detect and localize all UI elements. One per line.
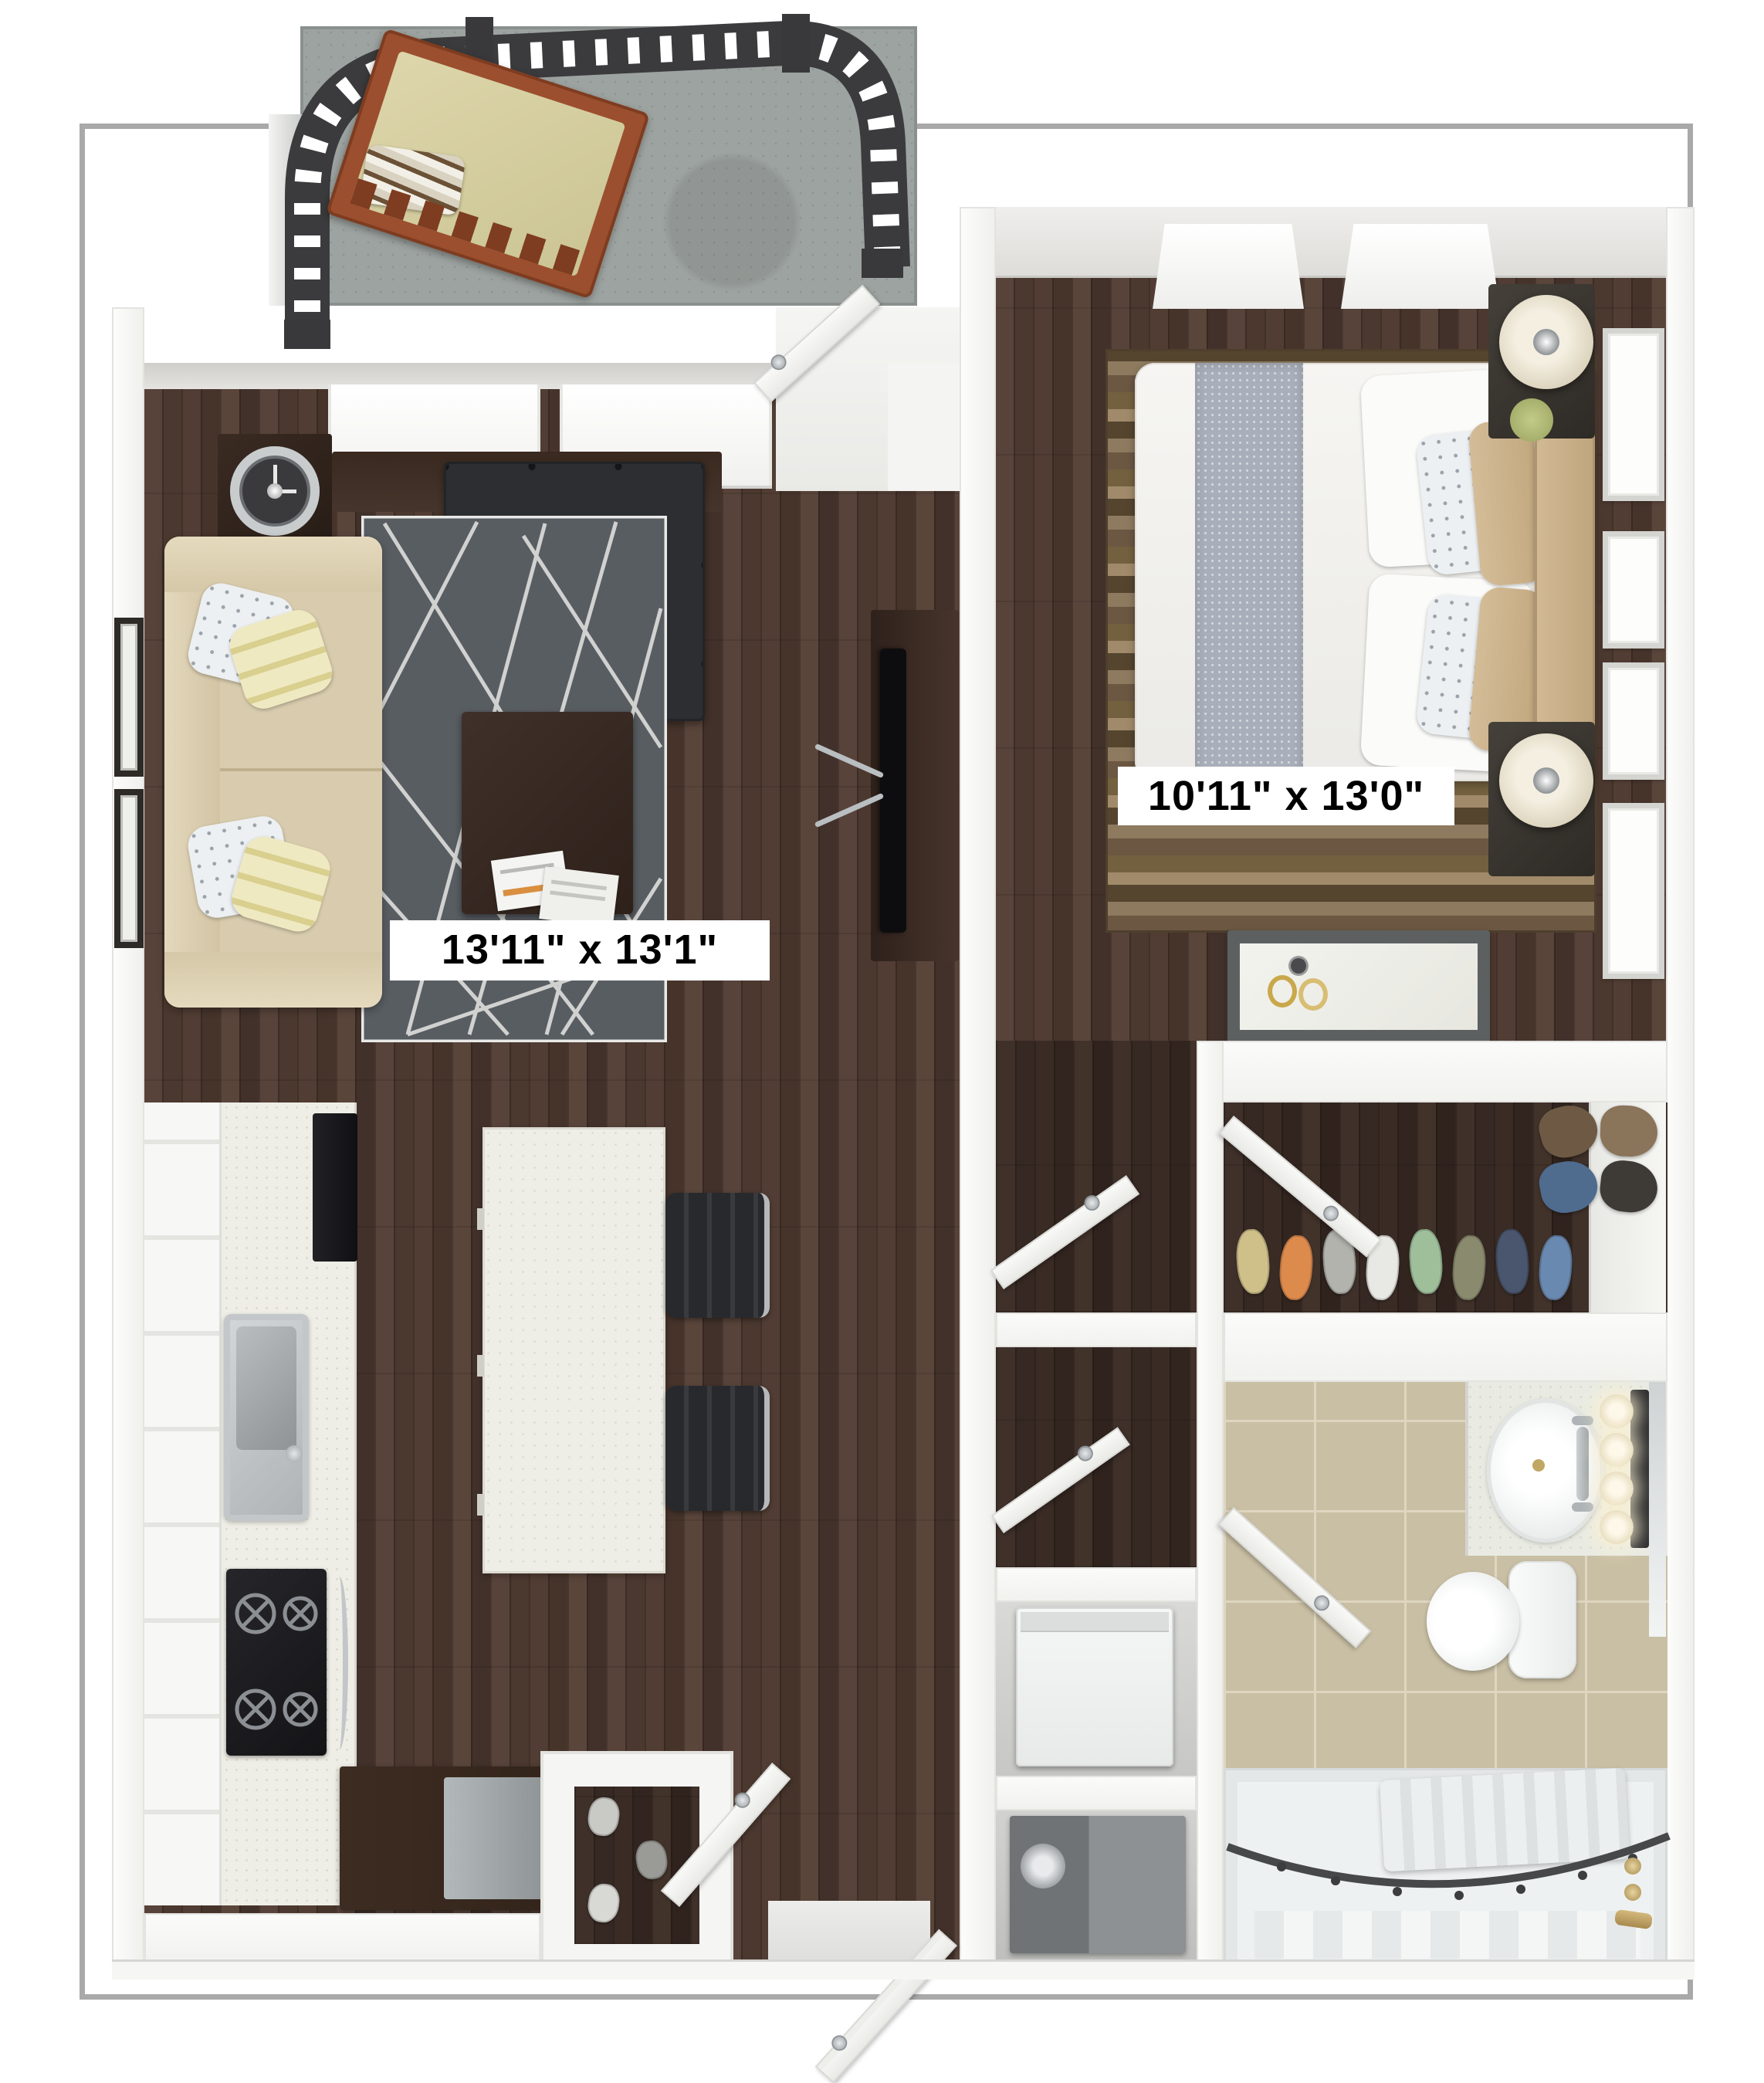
hall-wall (996, 1776, 1197, 1810)
living-bedroom-divider-wall (960, 207, 996, 1976)
wall-column-balcony-right (888, 363, 961, 491)
tub-handle-icon (1624, 1884, 1641, 1901)
shoe-pair (1537, 1235, 1574, 1302)
shoe-pair (1451, 1235, 1488, 1302)
hanging-garment (1535, 1157, 1601, 1218)
bedroom-dimensions-label: 10'11" x 13'0" (1118, 767, 1454, 825)
magazine-stripe (550, 890, 605, 901)
hanging-garments (1540, 1106, 1664, 1221)
tv-screen (880, 649, 906, 933)
shoe-pair (586, 1795, 622, 1837)
picture-frame (1603, 662, 1664, 780)
picture-frame (1603, 328, 1664, 501)
island-handle-icon (477, 1355, 484, 1377)
vanity-bulbs (1600, 1394, 1635, 1549)
hanging-garment (1600, 1105, 1658, 1158)
heater-cap-icon (1021, 1844, 1065, 1888)
vanity-bulb-icon (1600, 1394, 1634, 1428)
tub-faucet-brass-icon (1610, 1851, 1657, 1952)
lamp-finial-icon (1533, 329, 1559, 355)
vanity-bulb-icon (1600, 1510, 1634, 1544)
sink-basin (236, 1326, 296, 1450)
washer-control-panel (1021, 1612, 1169, 1632)
picture-frame (1603, 531, 1664, 649)
picture-frame (114, 789, 144, 948)
magazine (539, 866, 619, 927)
hall-wall (996, 1312, 1197, 1347)
bedroom-dresser (1227, 930, 1490, 1045)
wall-oven (313, 1113, 357, 1262)
faucet-handle-icon (1572, 1416, 1593, 1425)
island-handle-icon (477, 1208, 484, 1230)
washer-unit (1016, 1607, 1173, 1766)
sofa (164, 537, 382, 1008)
bedroom-curtain (1341, 224, 1500, 309)
clock-center-icon (267, 483, 283, 499)
shoe-pair (1278, 1235, 1315, 1302)
table-lamp-icon (1499, 733, 1593, 828)
stainless-panel (444, 1777, 543, 1899)
closet-bottom-wall (1224, 1312, 1668, 1382)
kitchen-faucet-icon (286, 1445, 303, 1462)
door-knob-icon (831, 2034, 848, 2052)
entry-floor-tile (768, 1901, 930, 1963)
bar-stool (665, 1386, 770, 1511)
faucet-handle-icon (1572, 1502, 1593, 1512)
hanging-garment (1598, 1158, 1660, 1214)
sofa-arm (164, 952, 382, 1008)
bar-stool (665, 1193, 770, 1318)
kitchen-island (482, 1127, 665, 1573)
magazine-stripe (551, 880, 607, 891)
table-lamp-icon (1499, 295, 1593, 389)
oven-handle-icon (330, 1577, 348, 1749)
tub-spout-icon (1614, 1909, 1653, 1929)
vanity-mirror (1649, 1382, 1666, 1637)
vanity-bulb-icon (1600, 1433, 1634, 1467)
shoe-pair (1407, 1228, 1444, 1296)
bottom-exterior-wall (112, 1959, 1695, 1980)
shoe-pair (1494, 1228, 1531, 1296)
sink-faucet-icon (1576, 1427, 1589, 1501)
living-room-dimensions-label: 13'11" x 13'1" (390, 920, 770, 981)
left-exterior-wall (112, 307, 144, 1961)
sink-drain-icon (1532, 1459, 1545, 1472)
moss-ball-decor (1510, 398, 1553, 442)
sofa-arm (164, 537, 382, 592)
tub-handle-icon (1624, 1858, 1641, 1875)
stove-burners-icon (226, 1569, 327, 1756)
water-heater-unit (1010, 1816, 1186, 1953)
hanging-garment (1535, 1099, 1603, 1163)
sofa-cushion-seam (220, 768, 382, 771)
bedroom-curtain (1153, 224, 1304, 309)
jewelry-ring-icon (1298, 978, 1328, 1011)
hall-wall (996, 1567, 1197, 1602)
picture-frame (1603, 803, 1664, 979)
island-handle-icon (477, 1494, 484, 1516)
jewelry-ring-icon (1268, 975, 1297, 1008)
shoe-pair (586, 1881, 622, 1924)
door-knob-icon (1322, 1204, 1340, 1222)
shoe-pair (634, 1838, 670, 1881)
kitchen-sink (224, 1314, 309, 1521)
closet-shoe-row (1237, 1229, 1584, 1303)
lamp-finial-icon (1533, 767, 1559, 794)
entry-closet-shoes (582, 1797, 690, 1936)
picture-frame (114, 618, 144, 777)
watch-icon (1291, 958, 1306, 974)
vanity-bulb-icon (1600, 1472, 1634, 1506)
right-exterior-wall (1666, 207, 1695, 1976)
wall-clock-icon (230, 446, 320, 536)
bed-runner (1195, 363, 1303, 781)
kitchen-bottom-wall (144, 1913, 540, 1963)
kitchen-cabinets (144, 1102, 222, 1905)
floor-plan: 13'11" x 13'1" 10'11" x 13'0" (0, 0, 1764, 2078)
toilet-bowl (1427, 1572, 1519, 1671)
door-knob-icon (1313, 1594, 1331, 1612)
bedroom-top-wall (994, 207, 1668, 278)
shoe-pair (1234, 1228, 1271, 1296)
